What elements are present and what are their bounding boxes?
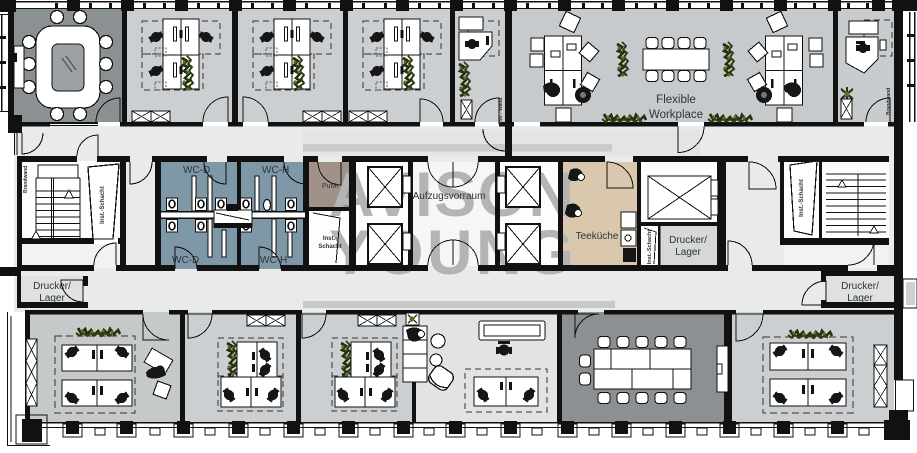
svg-text:Drucker/: Drucker/ — [841, 281, 879, 292]
svg-text:Flexible: Flexible — [656, 94, 696, 106]
svg-text:Inst.-Schacht: Inst.-Schacht — [647, 230, 653, 265]
svg-text:Aufzugsvorraum: Aufzugsvorraum — [413, 191, 486, 202]
svg-text:Inst.-Schacht: Inst.-Schacht — [100, 186, 106, 224]
svg-text:Teeküche: Teeküche — [576, 231, 619, 242]
svg-text:Lager: Lager — [847, 293, 873, 304]
svg-text:Inst.-Schacht: Inst.-Schacht — [799, 179, 805, 217]
svg-text:Brandwand: Brandwand — [23, 166, 29, 193]
svg-text:Schacht: Schacht — [318, 244, 341, 250]
svg-text:Lager: Lager — [39, 293, 65, 304]
svg-text:Drucker/: Drucker/ — [33, 281, 71, 292]
svg-text:Inst.-: Inst.- — [323, 236, 337, 242]
svg-text:Lager: Lager — [675, 247, 701, 258]
svg-text:Workplace: Workplace — [649, 109, 703, 121]
svg-text:Drucker/: Drucker/ — [669, 235, 707, 246]
svg-text:Brandwand: Brandwand — [886, 88, 892, 115]
svg-text:WC-H: WC-H — [260, 255, 287, 266]
